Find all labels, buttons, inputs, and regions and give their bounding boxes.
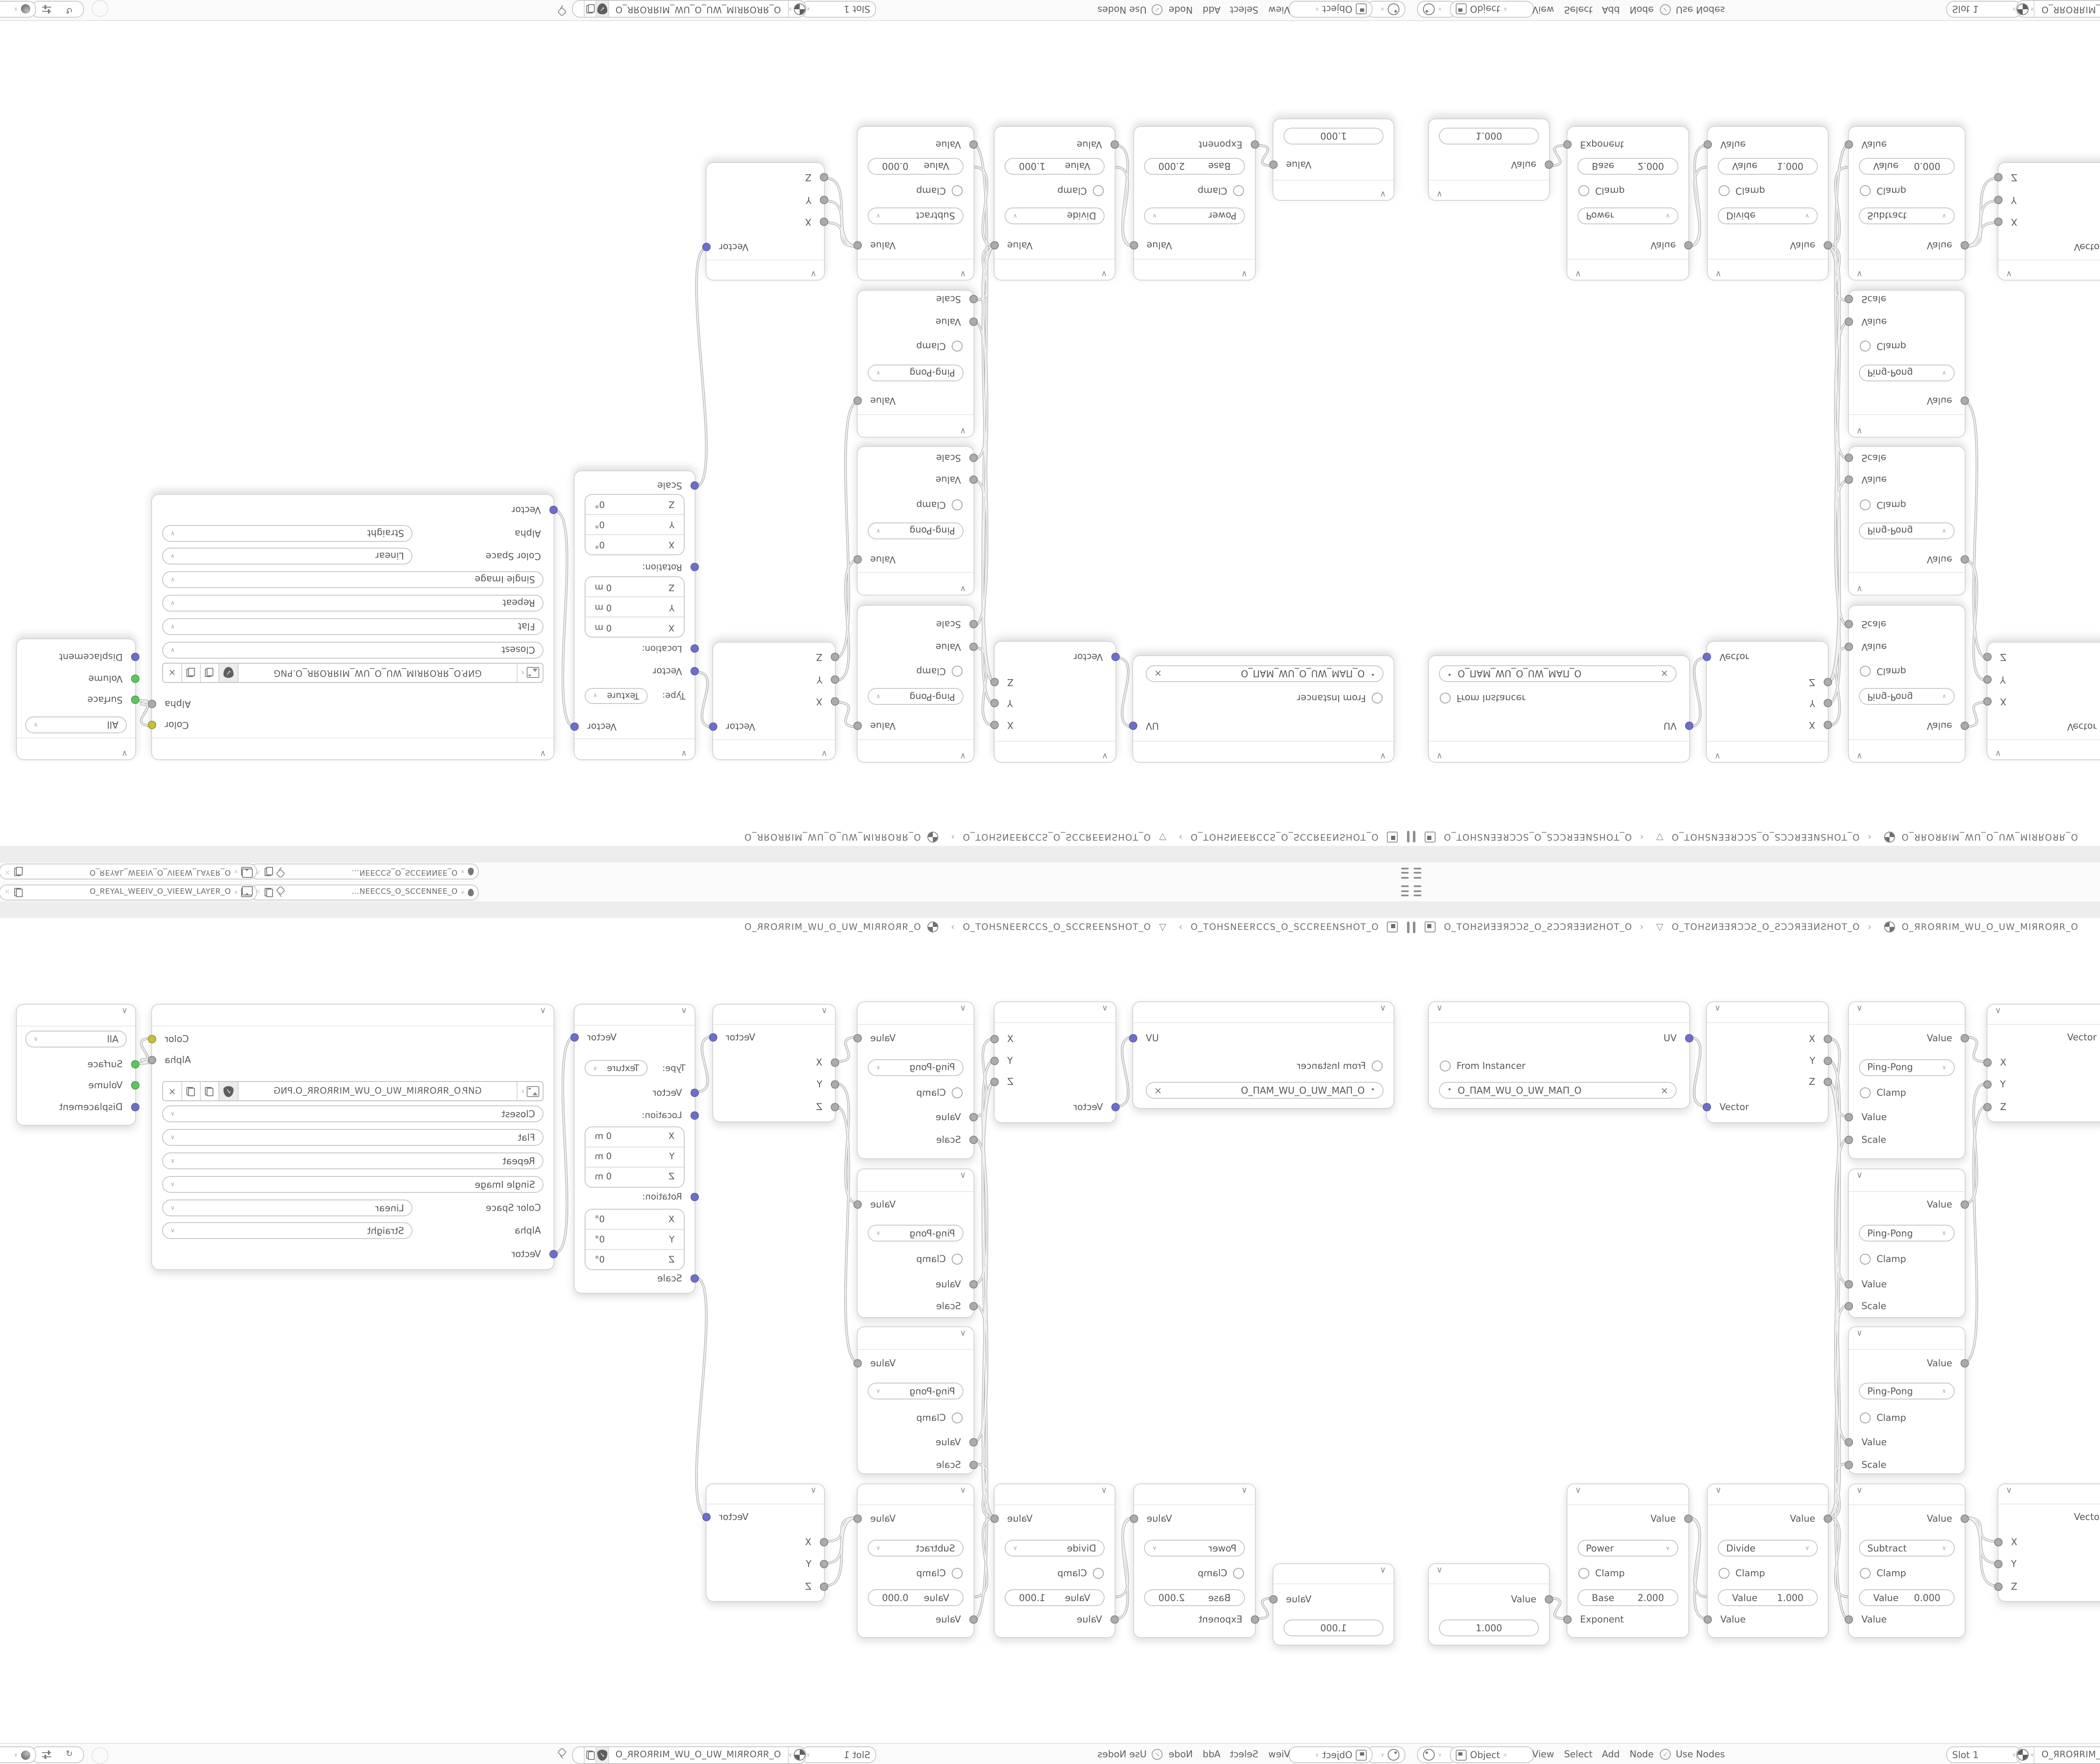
value-output-socket[interactable] bbox=[1269, 1595, 1278, 1603]
projection-select[interactable]: Flat∨ bbox=[162, 1129, 543, 1146]
value-output-socket[interactable] bbox=[1684, 1514, 1693, 1522]
uv-map-select[interactable]: • O_ПAM_WU_O_UW_MAП_O × bbox=[1146, 665, 1383, 682]
value-input-socket[interactable] bbox=[1110, 1615, 1119, 1624]
projection-select[interactable]: Flat∨ bbox=[162, 618, 543, 635]
displacement-input-socket[interactable] bbox=[131, 653, 139, 661]
y-output-socket[interactable] bbox=[1824, 1057, 1832, 1065]
node-math-power[interactable]: ∨ Value Power∨ Clamp Base2.000 Exponent bbox=[1133, 1483, 1256, 1638]
menu-view[interactable]: View bbox=[1268, 4, 1290, 15]
scale-input-socket[interactable] bbox=[1845, 295, 1853, 304]
collapse-chevron-icon[interactable]: ∨ bbox=[1241, 269, 1247, 278]
node-math-pingpong-y[interactable]: ∨ Value Ping-Pong∨ Clamp Value Scale bbox=[1848, 446, 1966, 596]
collapse-chevron-icon[interactable]: ∨ bbox=[1715, 269, 1722, 278]
node-mapping[interactable]: ∨ Vector Type: Texture∨ Vector Location:… bbox=[574, 1004, 696, 1294]
clamp-checkbox[interactable]: Clamp bbox=[1860, 1568, 1906, 1579]
scale-input-socket[interactable] bbox=[969, 1135, 978, 1144]
collapse-chevron-icon[interactable]: ∨ bbox=[1101, 269, 1107, 278]
x-input-socket[interactable] bbox=[820, 218, 828, 226]
material-name[interactable]: O_ЯROЯRIM_WU_O_UW_MIЯROЯR_O bbox=[2034, 1747, 2100, 1763]
scale-input-socket[interactable] bbox=[969, 1302, 978, 1310]
node-math-divide[interactable]: ∨ Value Divide∨ Clamp Value1.000 Value bbox=[1707, 126, 1829, 281]
x-input-socket[interactable] bbox=[820, 1538, 828, 1546]
clamp-checkbox[interactable]: Clamp bbox=[916, 666, 963, 677]
value-input-socket[interactable] bbox=[969, 318, 978, 326]
y-input-socket[interactable] bbox=[820, 1560, 828, 1568]
z-input-socket[interactable] bbox=[1983, 1103, 1992, 1111]
exponent-input-socket[interactable] bbox=[1563, 1615, 1572, 1624]
slot-select[interactable]: Slot 1∨ bbox=[801, 1, 876, 18]
y-output-socket[interactable] bbox=[1824, 699, 1832, 707]
base-field[interactable]: Base2.000 bbox=[1578, 1589, 1678, 1606]
node-value[interactable]: ∨ Value 1.000 bbox=[1273, 1563, 1394, 1646]
x-output-socket[interactable] bbox=[1824, 1035, 1832, 1043]
unlink-button[interactable]: × bbox=[163, 664, 182, 682]
base-field[interactable]: Base2.000 bbox=[1144, 158, 1245, 175]
alpha-mode-select[interactable]: Straight∨ bbox=[162, 525, 412, 542]
collapse-chevron-icon[interactable]: ∨ bbox=[1856, 1004, 1863, 1013]
operation-select[interactable]: Divide∨ bbox=[1718, 207, 1818, 224]
value-field[interactable]: Value0.000 bbox=[1859, 158, 1955, 175]
clamp-checkbox[interactable]: Clamp bbox=[1860, 499, 1906, 510]
image-selector[interactable]: ∨ GИP.O_ЯROЯRIM_WU_O_UW_MIЯROЯR_O.PNG ✓ … bbox=[162, 1081, 543, 1101]
menu-select[interactable]: Select bbox=[1230, 1749, 1258, 1760]
operation-select[interactable]: Divide∨ bbox=[1718, 1540, 1818, 1557]
value-field[interactable]: Value0.000 bbox=[1859, 1589, 1955, 1606]
node-math-pingpong-x[interactable]: ∨ Value Ping-Pong∨ Clamp Value Scale bbox=[857, 1001, 974, 1159]
menu-node[interactable]: Node bbox=[1169, 1749, 1193, 1760]
extension-select[interactable]: Repeat∨ bbox=[162, 595, 543, 612]
material-selector[interactable]: ∨ O_ЯROЯRIM_WU_O_UW_MIЯROЯR_O ✓ bbox=[572, 1746, 806, 1764]
value-output-socket[interactable] bbox=[853, 1359, 862, 1367]
value-input-socket[interactable] bbox=[969, 643, 978, 651]
node-math-pingpong-x[interactable]: ∨ Value Ping-Pong∨ Clamp Value Scale bbox=[857, 605, 974, 763]
material-browse-button[interactable]: ∨ bbox=[2017, 1, 2034, 17]
clamp-checkbox[interactable]: Clamp bbox=[1860, 1254, 1906, 1265]
collapse-chevron-icon[interactable]: ∨ bbox=[2006, 269, 2012, 278]
collapse-chevron-icon[interactable]: ∨ bbox=[1380, 1566, 1386, 1575]
collapse-chevron-icon[interactable]: ∨ bbox=[540, 748, 546, 758]
collapse-chevron-icon[interactable]: ∨ bbox=[1856, 584, 1863, 593]
node-combine-xyz-top[interactable]: ∨ Vector X Y Z bbox=[1987, 1004, 2100, 1122]
operation-select[interactable]: Power∨ bbox=[1578, 1540, 1678, 1557]
value-output-socket[interactable] bbox=[1961, 722, 1969, 730]
clamp-checkbox[interactable]: Clamp bbox=[1719, 1568, 1765, 1579]
target-select[interactable]: All∨ bbox=[25, 1031, 127, 1047]
value-input-socket[interactable] bbox=[1845, 140, 1853, 149]
clamp-checkbox[interactable]: Clamp bbox=[916, 1568, 963, 1579]
clamp-checkbox[interactable]: Clamp bbox=[916, 341, 963, 352]
scale-input-socket[interactable] bbox=[1845, 620, 1853, 629]
menu-add[interactable]: Add bbox=[1202, 1749, 1221, 1760]
value-field[interactable]: Value1.000 bbox=[1718, 1589, 1818, 1606]
value-output-socket[interactable] bbox=[853, 1514, 862, 1522]
value-output-socket[interactable] bbox=[853, 555, 862, 564]
uv-map-select[interactable]: • O_ПAM_WU_O_UW_MAП_O × bbox=[1439, 1082, 1677, 1099]
x-input-socket[interactable] bbox=[831, 1058, 839, 1067]
value-output-socket[interactable] bbox=[1824, 241, 1832, 250]
node-math-pingpong-z[interactable]: ∨ Value Ping-Pong∨ Clamp Value Scale bbox=[1848, 290, 1966, 438]
operation-select[interactable]: Ping-Pong∨ bbox=[868, 1383, 963, 1399]
exponent-input-socket[interactable] bbox=[1563, 140, 1572, 149]
operation-select[interactable]: Ping-Pong∨ bbox=[868, 365, 963, 381]
collapse-chevron-icon[interactable]: ∨ bbox=[821, 1006, 827, 1016]
vector-output-socket[interactable] bbox=[570, 1033, 579, 1042]
alpha-mode-select[interactable]: Straight∨ bbox=[162, 1222, 412, 1239]
operation-select[interactable]: Ping-Pong∨ bbox=[1859, 688, 1955, 705]
source-select[interactable]: Single Image∨ bbox=[162, 571, 543, 588]
snapping-controls[interactable]: ↺ bbox=[31, 1746, 84, 1763]
node-value[interactable]: ∨ Value 1.000 bbox=[1273, 118, 1394, 201]
scale-input-socket[interactable] bbox=[690, 481, 699, 490]
overlay-button[interactable] bbox=[92, 1747, 108, 1764]
z-output-socket[interactable] bbox=[1824, 1078, 1832, 1086]
z-input-socket[interactable] bbox=[831, 653, 839, 661]
node-math-subtract[interactable]: ∨ Value Subtract∨ Clamp Value0.000 Value bbox=[857, 126, 974, 281]
value-input-socket[interactable] bbox=[969, 1438, 978, 1446]
node-math-pingpong-y[interactable]: ∨ Value Ping-Pong∨ Clamp Value Scale bbox=[1848, 1168, 1966, 1318]
value-field[interactable]: Value1.000 bbox=[1718, 158, 1818, 175]
x-output-socket[interactable] bbox=[990, 721, 999, 729]
operation-select[interactable]: Ping-Pong∨ bbox=[868, 1225, 963, 1242]
slot-select[interactable]: Slot 1∨ bbox=[1946, 1746, 2022, 1763]
clamp-checkbox[interactable]: Clamp bbox=[1719, 185, 1765, 196]
uv-output-socket[interactable] bbox=[1129, 1034, 1137, 1042]
z-input-socket[interactable] bbox=[820, 1583, 828, 1591]
value-input-socket[interactable] bbox=[1704, 140, 1712, 149]
node-value[interactable]: ∨ Value 1.000 bbox=[1428, 118, 1550, 201]
value-output-socket[interactable] bbox=[1961, 1514, 1969, 1522]
image-browse-button[interactable]: ∨ bbox=[517, 664, 543, 682]
z-input-socket[interactable] bbox=[1994, 173, 2003, 181]
fake-user-button[interactable]: ✓ bbox=[596, 1747, 609, 1763]
node-combine-xyz-bottom[interactable]: ∨ Vector X Y Z bbox=[1998, 162, 2100, 281]
node-math-power[interactable]: ∨ Value Power∨ Clamp Base2.000 Exponent bbox=[1133, 126, 1256, 281]
clamp-checkbox[interactable]: Clamp bbox=[916, 1412, 963, 1423]
menu-select[interactable]: Select bbox=[1230, 4, 1258, 15]
clamp-checkbox[interactable]: Clamp bbox=[1860, 1412, 1906, 1423]
location-input-socket[interactable] bbox=[690, 1111, 699, 1119]
material-browse-button[interactable]: ∨ bbox=[2017, 1747, 2034, 1763]
vector-input-socket[interactable] bbox=[1703, 653, 1711, 661]
scale-input-socket[interactable] bbox=[1845, 1135, 1853, 1144]
rotation-values[interactable]: X0° Y0° Z0° bbox=[585, 494, 685, 555]
collapse-chevron-icon[interactable]: ∨ bbox=[1575, 1486, 1581, 1495]
collapse-chevron-icon[interactable]: ∨ bbox=[1101, 1486, 1107, 1495]
rotation-input-socket[interactable] bbox=[690, 1193, 699, 1201]
y-input-socket[interactable] bbox=[831, 675, 839, 684]
value-input-socket[interactable] bbox=[969, 1280, 978, 1289]
node-uv-map[interactable]: ∨ UV From Instancer • O_ПAM_WU_O_UW_MAП_… bbox=[1132, 655, 1394, 763]
interpolation-select[interactable]: Closest∨ bbox=[162, 1105, 543, 1122]
collapse-chevron-icon[interactable]: ∨ bbox=[121, 748, 128, 758]
collapse-chevron-icon[interactable]: ∨ bbox=[960, 1486, 966, 1495]
source-select[interactable]: Single Image∨ bbox=[162, 1176, 543, 1193]
color-space-select[interactable]: Linear∨ bbox=[162, 548, 412, 564]
scale-input-socket[interactable] bbox=[969, 620, 978, 629]
use-nodes-checkbox[interactable]: ✓ Use Nodes bbox=[1660, 1749, 1725, 1760]
menu-select[interactable]: Select bbox=[1564, 1749, 1593, 1760]
x-input-socket[interactable] bbox=[831, 697, 839, 706]
shader-type-select[interactable]: Object ∨ bbox=[1289, 1, 1373, 18]
operation-select[interactable]: Power∨ bbox=[1144, 1540, 1245, 1557]
node-separate-xyz[interactable]: ∨ X Y Z Vector bbox=[1706, 641, 1829, 763]
y-input-socket[interactable] bbox=[831, 1080, 839, 1089]
operation-select[interactable]: Ping-Pong∨ bbox=[1859, 1225, 1955, 1242]
image-name[interactable]: GИP.O_ЯROЯRIM_WU_O_UW_MIЯROЯR_O.PNG bbox=[239, 664, 517, 682]
location-values[interactable]: X0 m Y0 m Z0 m bbox=[585, 577, 685, 638]
z-output-socket[interactable] bbox=[1824, 678, 1832, 686]
menu-view[interactable]: View bbox=[1268, 1749, 1290, 1760]
z-output-socket[interactable] bbox=[990, 1078, 999, 1086]
volume-input-socket[interactable] bbox=[131, 675, 139, 683]
shader-type-select[interactable]: Object ∨ bbox=[1450, 1, 1534, 18]
clamp-checkbox[interactable]: Clamp bbox=[1198, 185, 1244, 196]
operation-select[interactable]: Divide∨ bbox=[1005, 207, 1105, 224]
node-math-pingpong-y[interactable]: ∨ Value Ping-Pong∨ Clamp Value Scale bbox=[857, 446, 974, 596]
y-input-socket[interactable] bbox=[1983, 675, 1992, 684]
operation-select[interactable]: Subtract∨ bbox=[1859, 207, 1955, 224]
surface-input-socket[interactable] bbox=[131, 696, 139, 704]
use-nodes-checkbox[interactable]: ✓ Use Nodes bbox=[1097, 4, 1163, 15]
y-input-socket[interactable] bbox=[1994, 196, 2003, 204]
collapse-chevron-icon[interactable]: ∨ bbox=[960, 1329, 966, 1338]
value-input-socket[interactable] bbox=[1845, 475, 1853, 484]
node-math-subtract[interactable]: ∨ Value Subtract∨ Clamp Value0.000 Value bbox=[1848, 1483, 1966, 1638]
vector-input-socket[interactable] bbox=[549, 1250, 558, 1258]
value-output-socket[interactable] bbox=[1961, 555, 1969, 564]
node-math-subtract[interactable]: ∨ Value Subtract∨ Clamp Value0.000 Value bbox=[857, 1483, 974, 1638]
x-output-socket[interactable] bbox=[990, 1035, 999, 1043]
value-output-socket[interactable] bbox=[1961, 1200, 1969, 1209]
clamp-checkbox[interactable]: Clamp bbox=[916, 499, 963, 510]
close-icon[interactable]: × bbox=[1661, 668, 1668, 679]
node-canvas[interactable]: ∨ UV From Instancer • O_ПAM_WU_O_UW_MAП_… bbox=[1411, 21, 2100, 828]
collapse-chevron-icon[interactable]: ∨ bbox=[960, 269, 966, 278]
clamp-checkbox[interactable]: Clamp bbox=[916, 1087, 963, 1098]
base-field[interactable]: Base2.000 bbox=[1578, 158, 1678, 175]
value-field[interactable]: 1.000 bbox=[1439, 128, 1539, 144]
value-input-socket[interactable] bbox=[1845, 1615, 1853, 1624]
value-output-socket[interactable] bbox=[1545, 1595, 1553, 1603]
value-output-socket[interactable] bbox=[853, 722, 862, 730]
value-output-socket[interactable] bbox=[990, 241, 999, 250]
vector-input-socket[interactable] bbox=[1703, 1103, 1711, 1111]
fake-user-button[interactable]: ✓ bbox=[219, 664, 239, 682]
vector-output-socket[interactable] bbox=[709, 722, 717, 731]
collapse-chevron-icon[interactable]: ∨ bbox=[1380, 1004, 1386, 1013]
exponent-input-socket[interactable] bbox=[1251, 140, 1259, 149]
material-browse-button[interactable]: ∨ bbox=[788, 1, 806, 17]
collapse-chevron-icon[interactable]: ∨ bbox=[1102, 751, 1108, 760]
vector-input-socket[interactable] bbox=[690, 667, 699, 675]
value-input-socket[interactable] bbox=[1845, 1113, 1853, 1121]
collapse-chevron-icon[interactable]: ∨ bbox=[1714, 751, 1721, 760]
y-output-socket[interactable] bbox=[990, 1057, 999, 1065]
x-output-socket[interactable] bbox=[1824, 721, 1832, 729]
scale-input-socket[interactable] bbox=[1845, 1460, 1853, 1469]
operation-select[interactable]: Subtract∨ bbox=[868, 1540, 963, 1557]
rotation-input-socket[interactable] bbox=[690, 563, 699, 571]
value-field[interactable]: Value1.000 bbox=[1005, 158, 1105, 175]
value-output-socket[interactable] bbox=[1130, 241, 1138, 250]
node-combine-xyz-bottom[interactable]: ∨ Vector X Y Z bbox=[1998, 1483, 2100, 1602]
alpha-output-socket[interactable] bbox=[148, 700, 156, 708]
clamp-checkbox[interactable]: Clamp bbox=[1198, 1568, 1244, 1579]
collapse-chevron-icon[interactable]: ∨ bbox=[1995, 748, 2001, 758]
node-math-pingpong-x[interactable]: ∨ Value Ping-Pong∨ Clamp Value Scale bbox=[1848, 605, 1966, 763]
node-combine-xyz-bottom[interactable]: ∨ Vector X Y Z bbox=[706, 162, 825, 281]
location-values[interactable]: X0 m Y0 m Z0 m bbox=[585, 1126, 685, 1187]
unlink-button[interactable]: × bbox=[163, 1082, 182, 1100]
x-input-socket[interactable] bbox=[1983, 1058, 1992, 1067]
material-browse-button[interactable]: ∨ bbox=[788, 1747, 806, 1763]
collapse-chevron-icon[interactable]: ∨ bbox=[1995, 1006, 2001, 1016]
pin-icon[interactable] bbox=[558, 1749, 566, 1759]
color-output-socket[interactable] bbox=[148, 721, 156, 729]
from-instancer-checkbox[interactable]: From Instancer bbox=[1440, 1060, 1525, 1071]
collapse-chevron-icon[interactable]: ∨ bbox=[540, 1006, 546, 1016]
pin-icon[interactable] bbox=[558, 5, 566, 15]
clamp-checkbox[interactable]: Clamp bbox=[1860, 341, 1906, 352]
y-input-socket[interactable] bbox=[1994, 1560, 2003, 1568]
menu-node[interactable]: Node bbox=[1630, 4, 1654, 15]
mapping-type-select[interactable]: Texture∨ bbox=[585, 1060, 648, 1076]
collapse-chevron-icon[interactable]: ∨ bbox=[1380, 189, 1386, 198]
collapse-chevron-icon[interactable]: ∨ bbox=[1436, 189, 1443, 198]
y-output-socket[interactable] bbox=[990, 699, 999, 707]
operation-select[interactable]: Subtract∨ bbox=[868, 207, 963, 224]
value-input-socket[interactable] bbox=[969, 140, 978, 149]
collapse-chevron-icon[interactable]: ∨ bbox=[1856, 269, 1863, 278]
z-output-socket[interactable] bbox=[990, 678, 999, 686]
value-output-socket[interactable] bbox=[853, 1200, 862, 1209]
value-field[interactable]: 1.000 bbox=[1284, 1620, 1383, 1636]
location-input-socket[interactable] bbox=[690, 645, 699, 653]
menu-add[interactable]: Add bbox=[1602, 4, 1620, 15]
collapse-chevron-icon[interactable]: ∨ bbox=[1856, 751, 1863, 760]
menu-node[interactable]: Node bbox=[1630, 1749, 1654, 1760]
collapse-chevron-icon[interactable]: ∨ bbox=[121, 1006, 128, 1016]
unpack-button[interactable] bbox=[182, 1082, 201, 1100]
menu-node[interactable]: Node bbox=[1169, 4, 1193, 15]
material-name[interactable]: O_ЯROЯRIM_WU_O_UW_MIЯROЯR_O bbox=[2034, 1, 2100, 17]
collapse-chevron-icon[interactable]: ∨ bbox=[960, 751, 966, 760]
mapping-type-select[interactable]: Texture∨ bbox=[585, 688, 648, 704]
clamp-checkbox[interactable]: Clamp bbox=[1578, 185, 1625, 196]
vector-input-socket[interactable] bbox=[690, 1089, 699, 1097]
scale-input-socket[interactable] bbox=[969, 1460, 978, 1469]
collapse-chevron-icon[interactable]: ∨ bbox=[1856, 1486, 1863, 1495]
value-field[interactable]: Value0.000 bbox=[868, 1589, 963, 1606]
x-input-socket[interactable] bbox=[1983, 697, 1992, 706]
surface-input-socket[interactable] bbox=[131, 1060, 139, 1068]
close-icon[interactable]: × bbox=[1154, 668, 1162, 679]
uv-output-socket[interactable] bbox=[1685, 722, 1693, 730]
operation-select[interactable]: Ping-Pong∨ bbox=[868, 688, 963, 705]
value-input-socket[interactable] bbox=[969, 1615, 978, 1624]
node-canvas[interactable]: ∨ UV From Instancer • O_ПAM_WU_O_UW_MAП_… bbox=[0, 21, 1411, 828]
collapse-chevron-icon[interactable]: ∨ bbox=[1856, 1329, 1863, 1338]
image-name[interactable]: GИP.O_ЯROЯRIM_WU_O_UW_MIЯROЯR_O.PNG bbox=[239, 1082, 517, 1100]
collapse-chevron-icon[interactable]: ∨ bbox=[1102, 1004, 1108, 1013]
node-separate-xyz[interactable]: ∨ X Y Z Vector bbox=[994, 641, 1116, 763]
clamp-checkbox[interactable]: Clamp bbox=[916, 185, 963, 196]
unlink-button[interactable] bbox=[573, 1, 585, 17]
vector-output-socket[interactable] bbox=[709, 1033, 717, 1042]
collapse-chevron-icon[interactable]: ∨ bbox=[2006, 1486, 2012, 1495]
fake-user-button[interactable]: ✓ bbox=[219, 1082, 239, 1100]
value-input-socket[interactable] bbox=[1845, 318, 1853, 326]
vector-input-socket[interactable] bbox=[1111, 653, 1120, 661]
node-combine-xyz-bottom[interactable]: ∨ Vector X Y Z bbox=[706, 1483, 825, 1602]
scale-input-socket[interactable] bbox=[1845, 1302, 1853, 1310]
volume-input-socket[interactable] bbox=[131, 1081, 139, 1089]
shading-button[interactable]: ∨ bbox=[0, 1746, 36, 1763]
operation-select[interactable]: Power∨ bbox=[1578, 207, 1678, 224]
use-nodes-checkbox[interactable]: ✓ Use Nodes bbox=[1097, 1749, 1163, 1760]
value-input-socket[interactable] bbox=[1110, 140, 1119, 149]
collapse-chevron-icon[interactable]: ∨ bbox=[1575, 269, 1581, 278]
vector-output-socket[interactable] bbox=[702, 243, 711, 251]
from-instancer-checkbox[interactable]: From Instancer bbox=[1440, 693, 1525, 703]
collapse-chevron-icon[interactable]: ∨ bbox=[960, 1004, 966, 1013]
value-output-socket[interactable] bbox=[990, 1514, 999, 1522]
material-name[interactable]: O_ЯROЯRIM_WU_O_UW_MIЯROЯR_O bbox=[609, 1747, 788, 1763]
value-output-socket[interactable] bbox=[853, 241, 862, 250]
clamp-checkbox[interactable]: Clamp bbox=[1860, 1087, 1906, 1098]
value-input-socket[interactable] bbox=[1845, 1280, 1853, 1289]
collapse-chevron-icon[interactable]: ∨ bbox=[1856, 1171, 1863, 1180]
node-math-pingpong-z[interactable]: ∨ Value Ping-Pong∨ Clamp Value Scale bbox=[1848, 1326, 1966, 1474]
value-output-socket[interactable] bbox=[1269, 161, 1278, 169]
from-instancer-checkbox[interactable]: From Instancer bbox=[1297, 693, 1383, 703]
collapse-chevron-icon[interactable]: ∨ bbox=[681, 748, 687, 758]
scale-input-socket[interactable] bbox=[690, 1274, 699, 1283]
material-selector[interactable]: ∨ O_ЯROЯRIM_WU_O_UW_MIЯROЯR_O ✓ bbox=[572, 0, 806, 18]
collapse-chevron-icon[interactable]: ∨ bbox=[1436, 751, 1443, 760]
uv-output-socket[interactable] bbox=[1129, 722, 1137, 730]
from-instancer-checkbox[interactable]: From Instancer bbox=[1297, 1060, 1383, 1071]
value-input-socket[interactable] bbox=[1704, 1615, 1712, 1624]
x-input-socket[interactable] bbox=[1994, 1538, 2003, 1546]
node-combine-xyz-top[interactable]: ∨ Vector X Y Z bbox=[712, 642, 836, 760]
collapse-chevron-icon[interactable]: ∨ bbox=[960, 1171, 966, 1180]
node-math-divide[interactable]: ∨ Value Divide∨ Clamp Value1.000 Value bbox=[994, 1483, 1116, 1638]
target-select[interactable]: All∨ bbox=[25, 717, 127, 733]
node-math-power[interactable]: ∨ Value Power∨ Clamp Base2.000 Exponent bbox=[1567, 1483, 1689, 1638]
shader-type-select[interactable]: Object ∨ bbox=[1450, 1746, 1534, 1763]
collapse-chevron-icon[interactable]: ∨ bbox=[810, 1486, 816, 1495]
menu-view[interactable]: View bbox=[1532, 1749, 1554, 1760]
shader-type-select[interactable]: Object ∨ bbox=[1289, 1746, 1373, 1763]
value-input-socket[interactable] bbox=[1845, 1438, 1853, 1446]
value-field[interactable]: 1.000 bbox=[1439, 1620, 1539, 1636]
close-icon[interactable]: × bbox=[1661, 1085, 1668, 1096]
clamp-checkbox[interactable]: Clamp bbox=[916, 1254, 963, 1265]
y-input-socket[interactable] bbox=[1983, 1080, 1992, 1089]
new-material-button[interactable] bbox=[585, 1, 597, 17]
menu-view[interactable]: View bbox=[1532, 4, 1554, 15]
collapse-chevron-icon[interactable]: ∨ bbox=[960, 426, 966, 435]
node-image-texture[interactable]: ∨ Color Alpha ∨ GИP.O_ЯROЯRIM_WU_O_UW_MI… bbox=[151, 1004, 554, 1270]
z-input-socket[interactable] bbox=[1994, 1583, 2003, 1591]
operation-select[interactable]: Ping-Pong∨ bbox=[868, 522, 963, 539]
node-math-divide[interactable]: ∨ Value Divide∨ Clamp Value1.000 Value bbox=[1707, 1483, 1829, 1638]
node-math-divide[interactable]: ∨ Value Divide∨ Clamp Value1.000 Value bbox=[994, 126, 1116, 281]
node-mapping[interactable]: ∨ Vector Type: Texture∨ Vector Location:… bbox=[574, 470, 696, 760]
operation-select[interactable]: Subtract∨ bbox=[1859, 1540, 1955, 1557]
node-separate-xyz[interactable]: ∨ X Y Z Vector bbox=[1706, 1001, 1829, 1123]
